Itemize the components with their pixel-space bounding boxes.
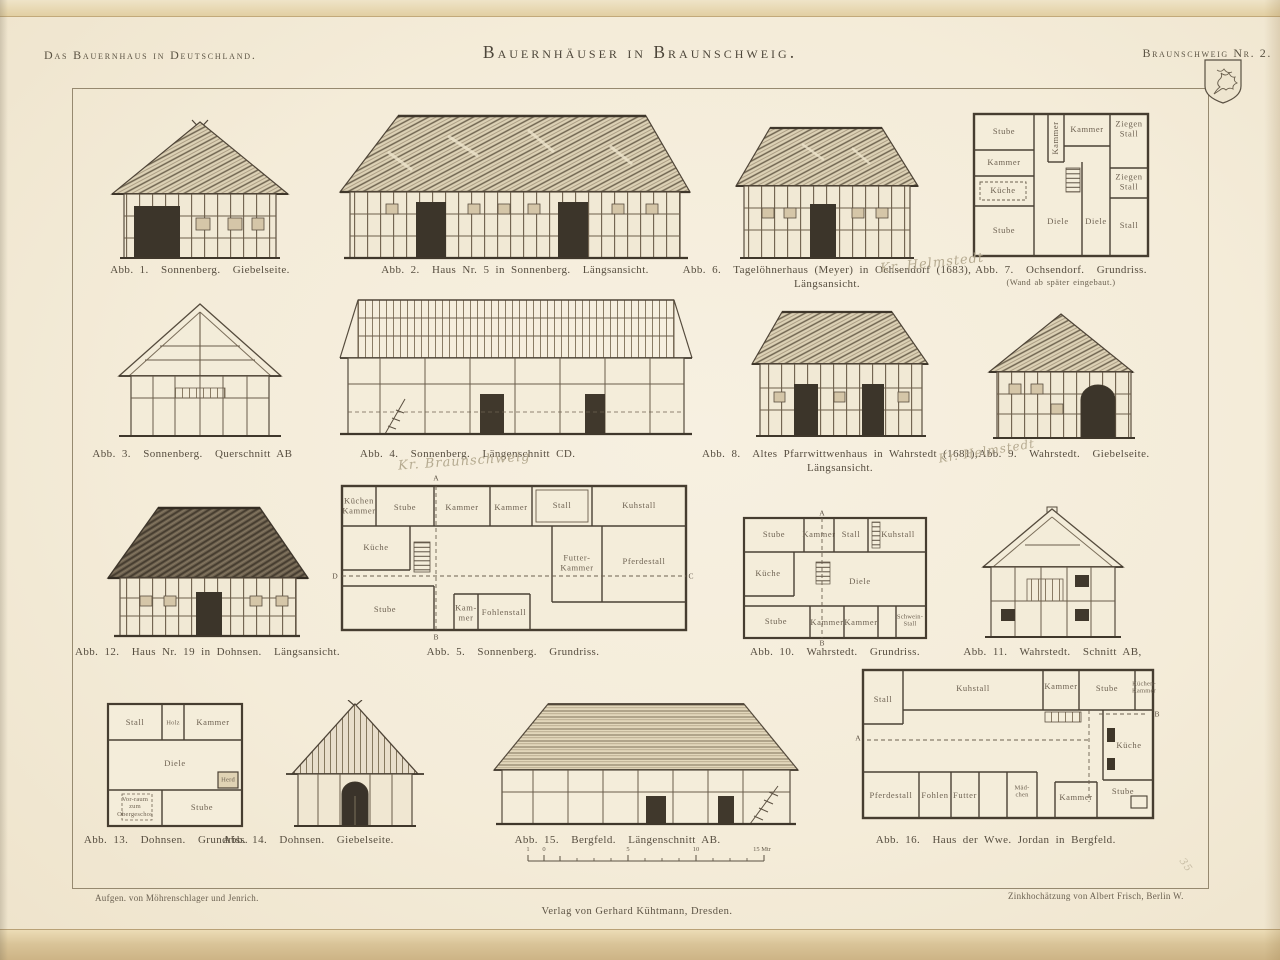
figure-caption: Abb. 7. Ochsendorf. Grundriss. bbox=[975, 264, 1147, 276]
figure-caption: Abb. 2. Haus Nr. 5 in Sonnenberg. Längsa… bbox=[381, 264, 649, 276]
page-edge-top bbox=[0, 0, 1280, 17]
page-edge-right bbox=[1264, 0, 1280, 960]
section-mark: A bbox=[819, 509, 824, 518]
room-label: Ziegen Stall bbox=[1115, 119, 1142, 138]
figure-abb2: Abb. 2. Haus Nr. 5 in Sonnenberg. Längsa… bbox=[328, 106, 702, 281]
room-label: Schwein- Stall bbox=[897, 614, 923, 629]
room-label: Herd bbox=[221, 776, 235, 783]
figure-abb11: Abb. 11. Wahrstedt. Schnitt AB, bbox=[975, 505, 1130, 665]
figure-caption: Abb. 15. Bergfeld. Längenschnitt AB. bbox=[515, 834, 721, 846]
figure-caption-line2: Längsansicht. bbox=[794, 278, 860, 290]
room-label: Diele bbox=[164, 759, 185, 769]
room-label: Stube bbox=[993, 127, 1015, 137]
figure-caption: Abb. 12. Haus Nr. 19 in Dohnsen. Längsan… bbox=[75, 646, 340, 658]
figure-abb13: Stall Holz Kammer Diele Herd Vor-raum zu… bbox=[100, 696, 250, 856]
figure-abb5: Küchen Kammer Stube Kammer Kammer Stall … bbox=[330, 470, 696, 665]
room-label: Stube bbox=[765, 617, 787, 627]
figure-abb12: Abb. 12. Haus Nr. 19 in Dohnsen. Längsan… bbox=[100, 500, 315, 665]
scanned-plate-page: Das Bauernhaus in Deutschland. Bauernhäu… bbox=[0, 0, 1280, 960]
page-edge-left bbox=[0, 0, 8, 960]
room-label: Kammer bbox=[445, 503, 478, 513]
figure-abb10: Stube Kammer Stall Kuhstall Küche Diele … bbox=[738, 508, 932, 668]
room-label: Diele bbox=[1047, 217, 1068, 227]
figure-caption: Abb. 8. Altes Pfarrwittwenhaus in Wahrst… bbox=[702, 448, 978, 460]
figure-caption-note: (Wand ab später eingebaut.) bbox=[1007, 277, 1116, 287]
abb2-long-elevation-drawing bbox=[328, 106, 702, 264]
credit-etcher: Zinkhochätzung von Albert Frisch, Berlin… bbox=[1008, 891, 1184, 901]
abb4-long-section-drawing bbox=[330, 294, 702, 442]
scale-label: 5 bbox=[626, 846, 629, 853]
room-label: Kammer bbox=[987, 158, 1020, 168]
room-label: Stube bbox=[1112, 787, 1134, 797]
room-label: Holz bbox=[166, 719, 179, 726]
abb9-gable-elevation-drawing bbox=[985, 308, 1143, 442]
room-label: Fohlen bbox=[921, 791, 948, 801]
room-label: Kammer bbox=[1044, 682, 1077, 692]
room-label: Stall bbox=[553, 501, 572, 511]
abb8-long-elevation-drawing bbox=[742, 306, 938, 442]
figure-abb3: Abb. 3. Sonnenberg. Querschnitt AB /* ca… bbox=[105, 298, 295, 463]
scale-bar-drawing bbox=[524, 848, 774, 868]
room-label: Küchen- Kammer bbox=[1132, 681, 1156, 696]
room-label: Kammer bbox=[1059, 793, 1092, 803]
room-label: Stall bbox=[874, 695, 893, 705]
room-label: Kammer bbox=[494, 503, 527, 513]
room-label: Küche bbox=[990, 186, 1015, 196]
abb6-long-elevation-drawing bbox=[722, 120, 932, 264]
room-label: Kammer bbox=[1070, 125, 1103, 135]
room-label: Kammer bbox=[844, 618, 877, 628]
room-label: Kammer bbox=[810, 618, 843, 628]
figure-caption: Abb. 1. Sonnenberg. Giebelseite. bbox=[110, 264, 290, 276]
series-title: Das Bauernhaus in Deutschland. bbox=[44, 48, 257, 63]
figure-abb1: Abb. 1. Sonnenberg. Giebelseite. bbox=[100, 118, 300, 283]
room-label: Stube bbox=[763, 530, 785, 540]
abb11-section-drawing bbox=[975, 505, 1130, 643]
room-label: Kam- mer bbox=[455, 603, 477, 622]
room-label: Pferdestall bbox=[623, 557, 666, 567]
credit-surveyors: Aufgen. von Möhrenschlager und Jenrich. bbox=[95, 893, 259, 903]
page-edge-bottom bbox=[0, 929, 1280, 960]
braunschweig-crest-icon bbox=[1203, 58, 1243, 106]
figure-caption-line2: Längsansicht. bbox=[807, 462, 873, 474]
room-label: Kammer bbox=[802, 530, 835, 540]
plate-title: Bauernhäuser in Braunschweig. bbox=[483, 42, 797, 63]
room-label: Kammer bbox=[196, 718, 229, 728]
room-label: Diele bbox=[849, 577, 870, 587]
figure-abb16: Stall Kuhstall Kammer Stube Küchen- Kamm… bbox=[855, 662, 1161, 852]
section-mark: A bbox=[855, 734, 860, 743]
figure-caption: Abb. 11. Wahrstedt. Schnitt AB, bbox=[963, 646, 1141, 658]
room-label: Küchen Kammer bbox=[342, 496, 375, 515]
figure-abb8: Abb. 8. Altes Pfarrwittwenhaus in Wahrst… bbox=[742, 306, 938, 471]
room-label: Stall bbox=[126, 718, 145, 728]
abb14-gable-elevation-drawing bbox=[282, 700, 428, 832]
room-label: Stube bbox=[1096, 684, 1118, 694]
figure-abb15: Abb. 15. Bergfeld. Längenschnitt AB. bbox=[488, 698, 804, 853]
figure-abb4: Abb. 4. Sonnenberg. Längenschnitt CD. bbox=[330, 294, 702, 464]
abb12-long-elevation-drawing bbox=[100, 500, 315, 640]
room-label: Kuhstall bbox=[622, 501, 656, 511]
credit-publisher: Verlag von Gerhard Kühtmann, Dresden. bbox=[541, 906, 732, 917]
room-label: Küche bbox=[755, 569, 780, 579]
room-label: Futter- Kammer bbox=[560, 553, 593, 572]
room-label: Stube bbox=[191, 803, 213, 813]
room-label: Stube bbox=[394, 503, 416, 513]
section-mark: A bbox=[433, 474, 438, 483]
figure-caption: Abb. 3. Sonnenberg. Querschnitt AB bbox=[92, 448, 292, 460]
room-label: Mäd- chen bbox=[1015, 785, 1030, 800]
scale-bar: 1 0 5 10 15 Mtr bbox=[524, 848, 774, 868]
figure-abb14: Abb. 14. Dohnsen. Giebelseite. bbox=[282, 700, 428, 855]
section-mark: B bbox=[1154, 710, 1159, 719]
room-label: Fohlenstall bbox=[482, 608, 526, 618]
room-label: Stall bbox=[842, 530, 861, 540]
scale-label: 1 bbox=[526, 846, 529, 853]
room-label: Futter bbox=[953, 791, 977, 801]
figure-caption: Abb. 14. Dohnsen. Giebelseite. bbox=[223, 834, 394, 846]
figure-caption: Abb. 10. Wahrstedt. Grundriss. bbox=[750, 646, 920, 658]
section-mark: C bbox=[688, 572, 693, 581]
room-label: Vor-raum zum Obergeschos bbox=[117, 796, 153, 818]
room-label: Diele bbox=[1085, 217, 1106, 227]
scale-label: 0 bbox=[542, 846, 545, 853]
room-label: Küche bbox=[1116, 741, 1141, 751]
figure-caption: Abb. 5. Sonnenberg. Grundriss. bbox=[427, 646, 600, 658]
room-label: Kuhstall bbox=[956, 684, 990, 694]
figure-abb7: Stube Kammer Küche Stube Kammer Kammer Z… bbox=[970, 110, 1152, 290]
room-label: Ziegen Stall bbox=[1115, 172, 1142, 191]
abb3-cross-section-drawing bbox=[105, 298, 295, 442]
room-label: Kuhstall bbox=[881, 530, 915, 540]
figure-caption: Abb. 16. Haus der Wwe. Jordan in Bergfel… bbox=[876, 834, 1116, 846]
scale-label: 10 bbox=[693, 846, 700, 853]
room-label: Stall bbox=[1120, 221, 1139, 231]
room-label: Kammer bbox=[1051, 121, 1061, 154]
abb15-long-section-drawing bbox=[488, 698, 804, 830]
room-label: Küche bbox=[363, 543, 388, 553]
room-label: Pferdestall bbox=[870, 791, 913, 801]
scale-label: 15 Mtr bbox=[753, 846, 771, 853]
room-label: Stube bbox=[993, 226, 1015, 236]
room-label: Stube bbox=[374, 605, 396, 615]
section-mark: B bbox=[433, 633, 438, 642]
abb1-gable-elevation-drawing bbox=[100, 118, 300, 264]
section-mark: D bbox=[332, 572, 337, 581]
